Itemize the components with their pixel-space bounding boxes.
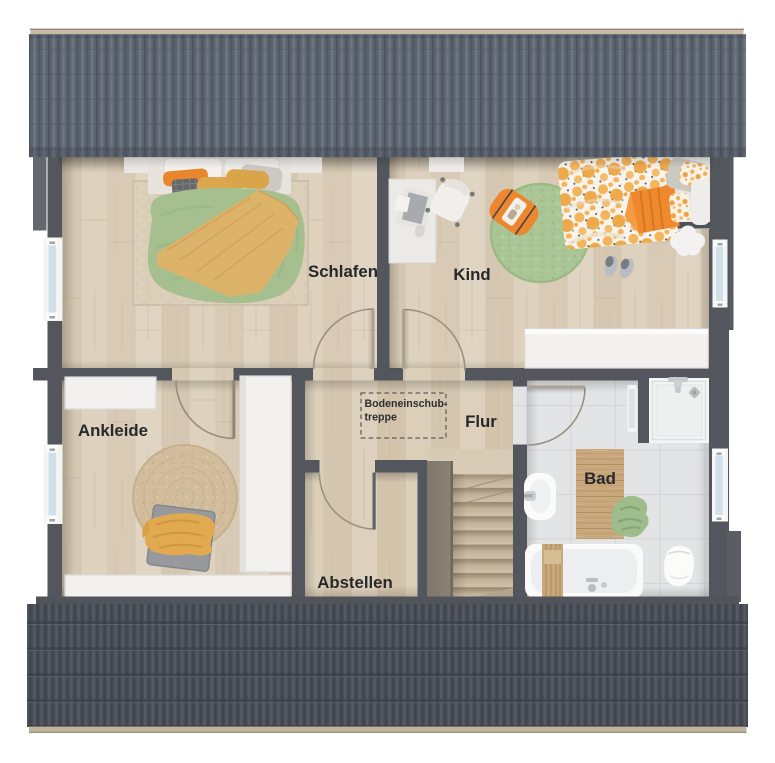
svg-text:Kind: Kind: [453, 265, 490, 284]
svg-text:Bodeneinschub-: Bodeneinschub-: [365, 398, 448, 410]
svg-text:Flur: Flur: [465, 412, 497, 431]
svg-text:treppe: treppe: [365, 412, 397, 424]
svg-text:Bad: Bad: [584, 469, 616, 488]
svg-text:Schlafen: Schlafen: [308, 262, 378, 281]
svg-text:Abstellen: Abstellen: [317, 573, 393, 592]
svg-text:Ankleide: Ankleide: [78, 421, 148, 440]
